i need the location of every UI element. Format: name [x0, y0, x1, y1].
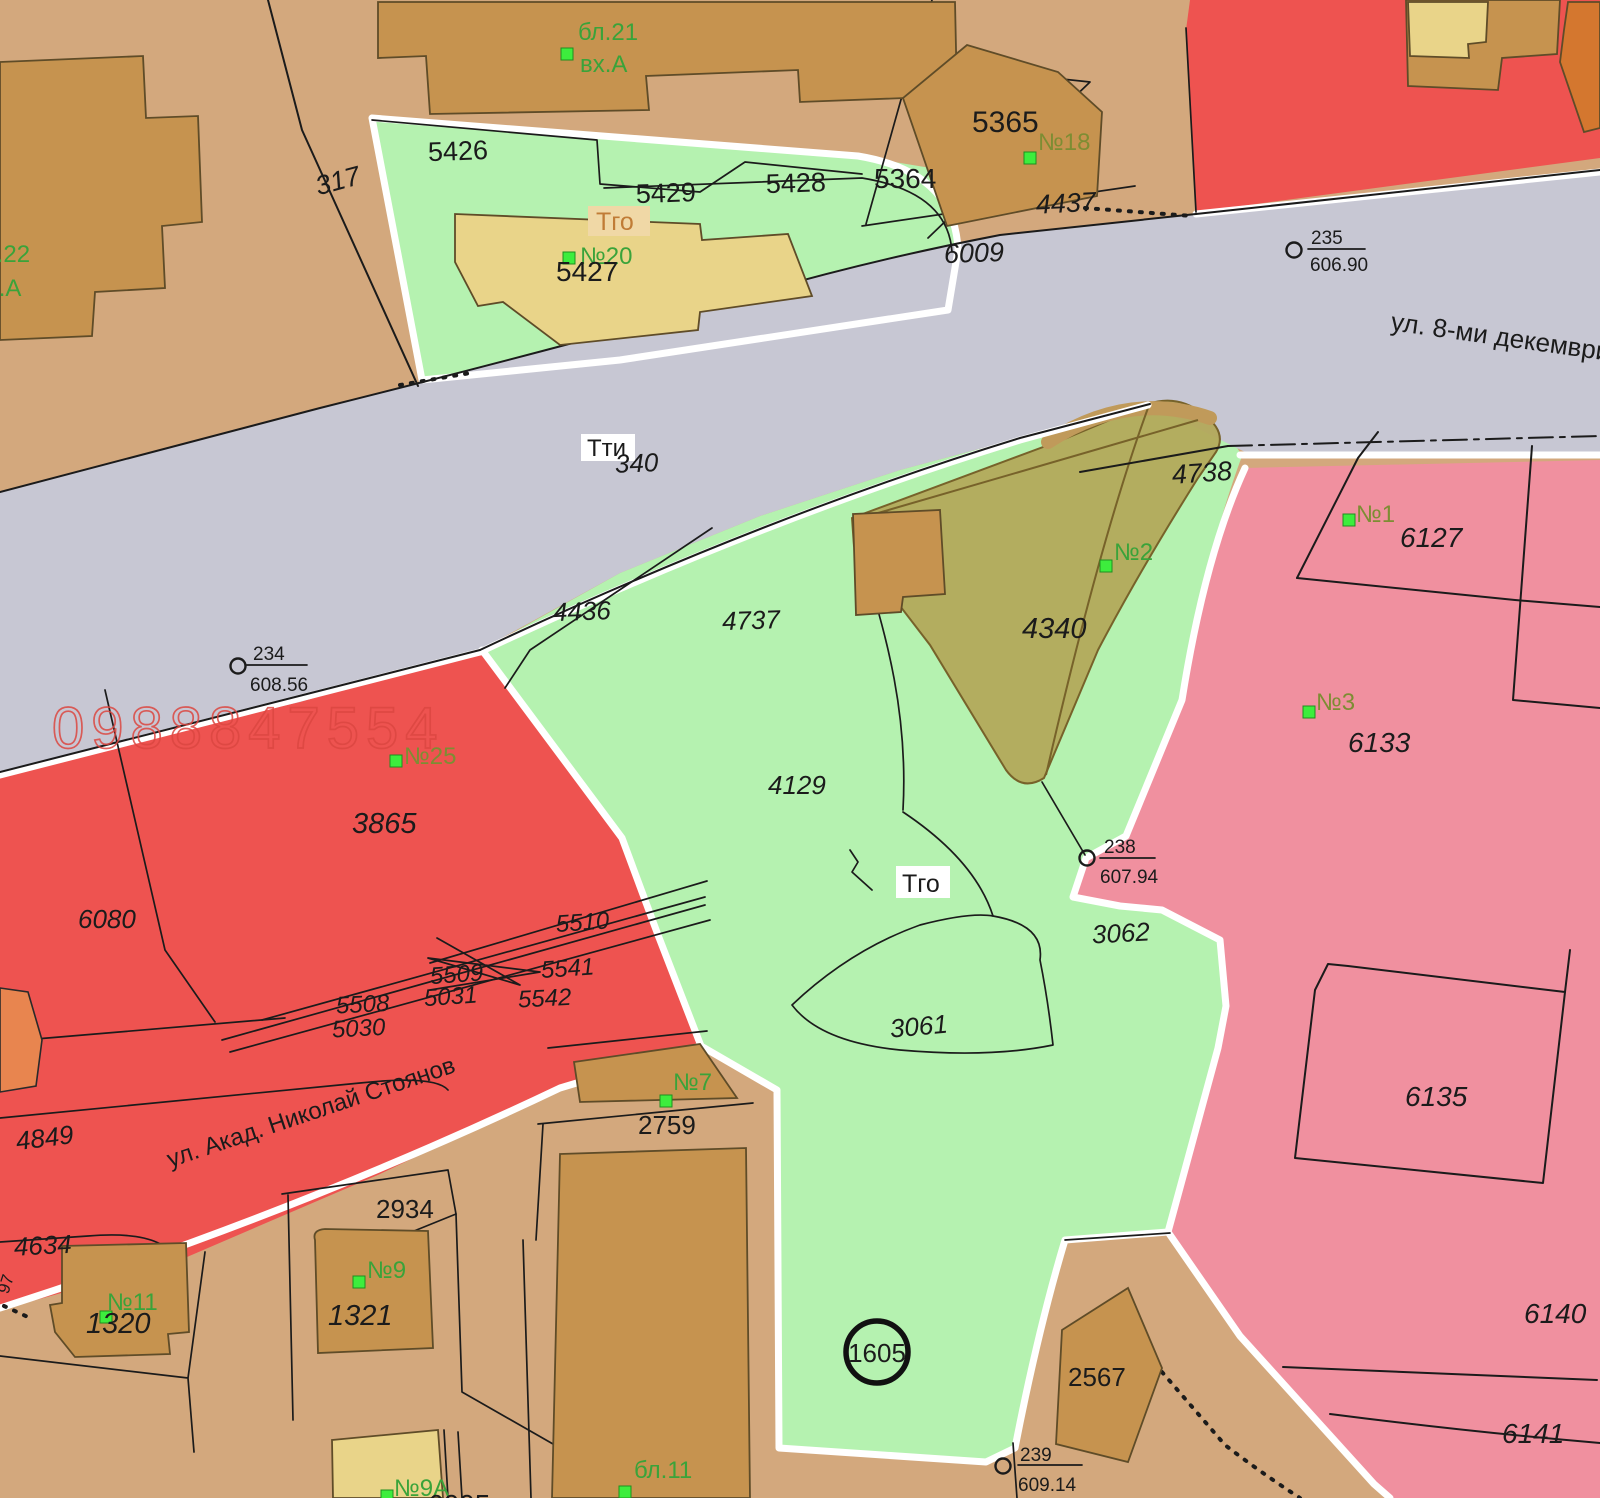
survey-id-234: 234: [253, 644, 285, 665]
parcel-label-6135: 6135: [1405, 1081, 1468, 1112]
map-canvas[interactable]: бл.21 вх.А бл.22 вх.А 317 5426 5429 5428…: [0, 0, 1600, 1498]
parcel-label-6133: 6133: [1348, 727, 1411, 758]
parcel-label-4129: 4129: [768, 770, 826, 800]
parcel-label-5510: 5510: [555, 907, 611, 938]
entrance-label-n7: №7: [673, 1069, 712, 1096]
entrance-marker-n9: [353, 1276, 365, 1288]
building-label-bl21: бл.21: [578, 19, 638, 46]
parcel-label-4737: 4737: [721, 604, 781, 636]
parcel-label-5365: 5365: [972, 106, 1039, 139]
building-label-bl22-entrance: вх.А: [0, 275, 21, 302]
parcel-label-6009: 6009: [943, 237, 1004, 269]
parcel-label-5429: 5429: [635, 177, 696, 209]
parcel-label-4340: 4340: [1022, 613, 1087, 645]
parcel-label-1320: 1320: [86, 1308, 151, 1340]
entrance-marker-n3: [1303, 706, 1315, 718]
parcel-label-5031: 5031: [423, 981, 478, 1012]
entrance-marker-n7: [660, 1095, 672, 1107]
parcel-label-6005: 6005: [428, 1489, 490, 1498]
entrance-label-n18: №18: [1038, 129, 1090, 156]
entrance-label-n3: №3: [1316, 689, 1355, 716]
entrance-label-n2: №2: [1114, 539, 1153, 566]
survey-id-239: 239: [1020, 1445, 1052, 1466]
parcel-label-4738: 4738: [1171, 456, 1233, 490]
entrance-marker-n1: [1343, 514, 1355, 526]
entrance-marker-bl21: [561, 48, 573, 60]
parcel-label-5426: 5426: [427, 135, 488, 167]
building-bl11: [552, 1148, 750, 1498]
building-label-bl11: бл.11: [634, 1457, 692, 1484]
entrance-marker-bl11: [619, 1486, 631, 1498]
parcel-label-4634: 4634: [13, 1229, 72, 1262]
parcel-label-3061: 3061: [889, 1009, 949, 1044]
entrance-label-n9: №9: [367, 1257, 406, 1284]
label-tgo-center: Тго: [902, 870, 940, 898]
building-label-bl22: бл.22: [0, 241, 30, 268]
parcel-label-5542: 5542: [517, 984, 572, 1014]
survey-id-238: 238: [1104, 837, 1136, 858]
survey-elev-239: 609.14: [1018, 1475, 1077, 1496]
parcel-label-2567: 2567: [1068, 1362, 1126, 1392]
survey-elev-238: 607.94: [1100, 867, 1159, 888]
parcel-label-5030: 5030: [331, 1014, 386, 1044]
label-tgo-top: Тго: [596, 208, 634, 236]
parcel-label-1321: 1321: [328, 1300, 393, 1332]
parcel-label-5428: 5428: [765, 167, 826, 199]
building-1321: [314, 1229, 433, 1353]
parcel-label-6141: 6141: [1502, 1418, 1564, 1449]
entrance-marker-n9a: [381, 1490, 393, 1498]
parcel-label-3865: 3865: [352, 808, 417, 840]
entrance-marker-n18: [1024, 152, 1036, 164]
entrance-label-n25: №25: [404, 743, 456, 770]
parcel-label-3062: 3062: [1091, 916, 1151, 949]
survey-elev-234: 608.56: [250, 675, 308, 696]
survey-id-235: 235: [1311, 228, 1343, 249]
parcel-label-6127: 6127: [1400, 522, 1464, 553]
watermark-phone: 0988847554: [52, 696, 445, 761]
zone-ref-label-1605: 1605: [848, 1338, 906, 1368]
parcel-label-5427: 5427: [556, 256, 618, 287]
parcel-label-4437: 4437: [1035, 187, 1098, 220]
parcel-label-6140: 6140: [1524, 1298, 1587, 1329]
parcel-label-6080: 6080: [78, 904, 136, 934]
parcel-label-5364: 5364: [874, 163, 936, 194]
building-label-bl21-entrance: вх.А: [580, 51, 627, 78]
entrance-label-n1: №1: [1356, 501, 1395, 528]
parcel-label-5541: 5541: [540, 953, 595, 984]
parcel-label-2759: 2759: [638, 1110, 696, 1140]
entrance-marker-n2: [1100, 560, 1112, 572]
parcel-label-340: 340: [614, 447, 659, 479]
parcel-label-4436: 4436: [552, 595, 611, 627]
survey-elev-235: 606.90: [1310, 255, 1368, 276]
cadastral-map[interactable]: бл.21 вх.А бл.22 вх.А 317 5426 5429 5428…: [0, 0, 1600, 1498]
parcel-label-2934: 2934: [376, 1194, 434, 1224]
